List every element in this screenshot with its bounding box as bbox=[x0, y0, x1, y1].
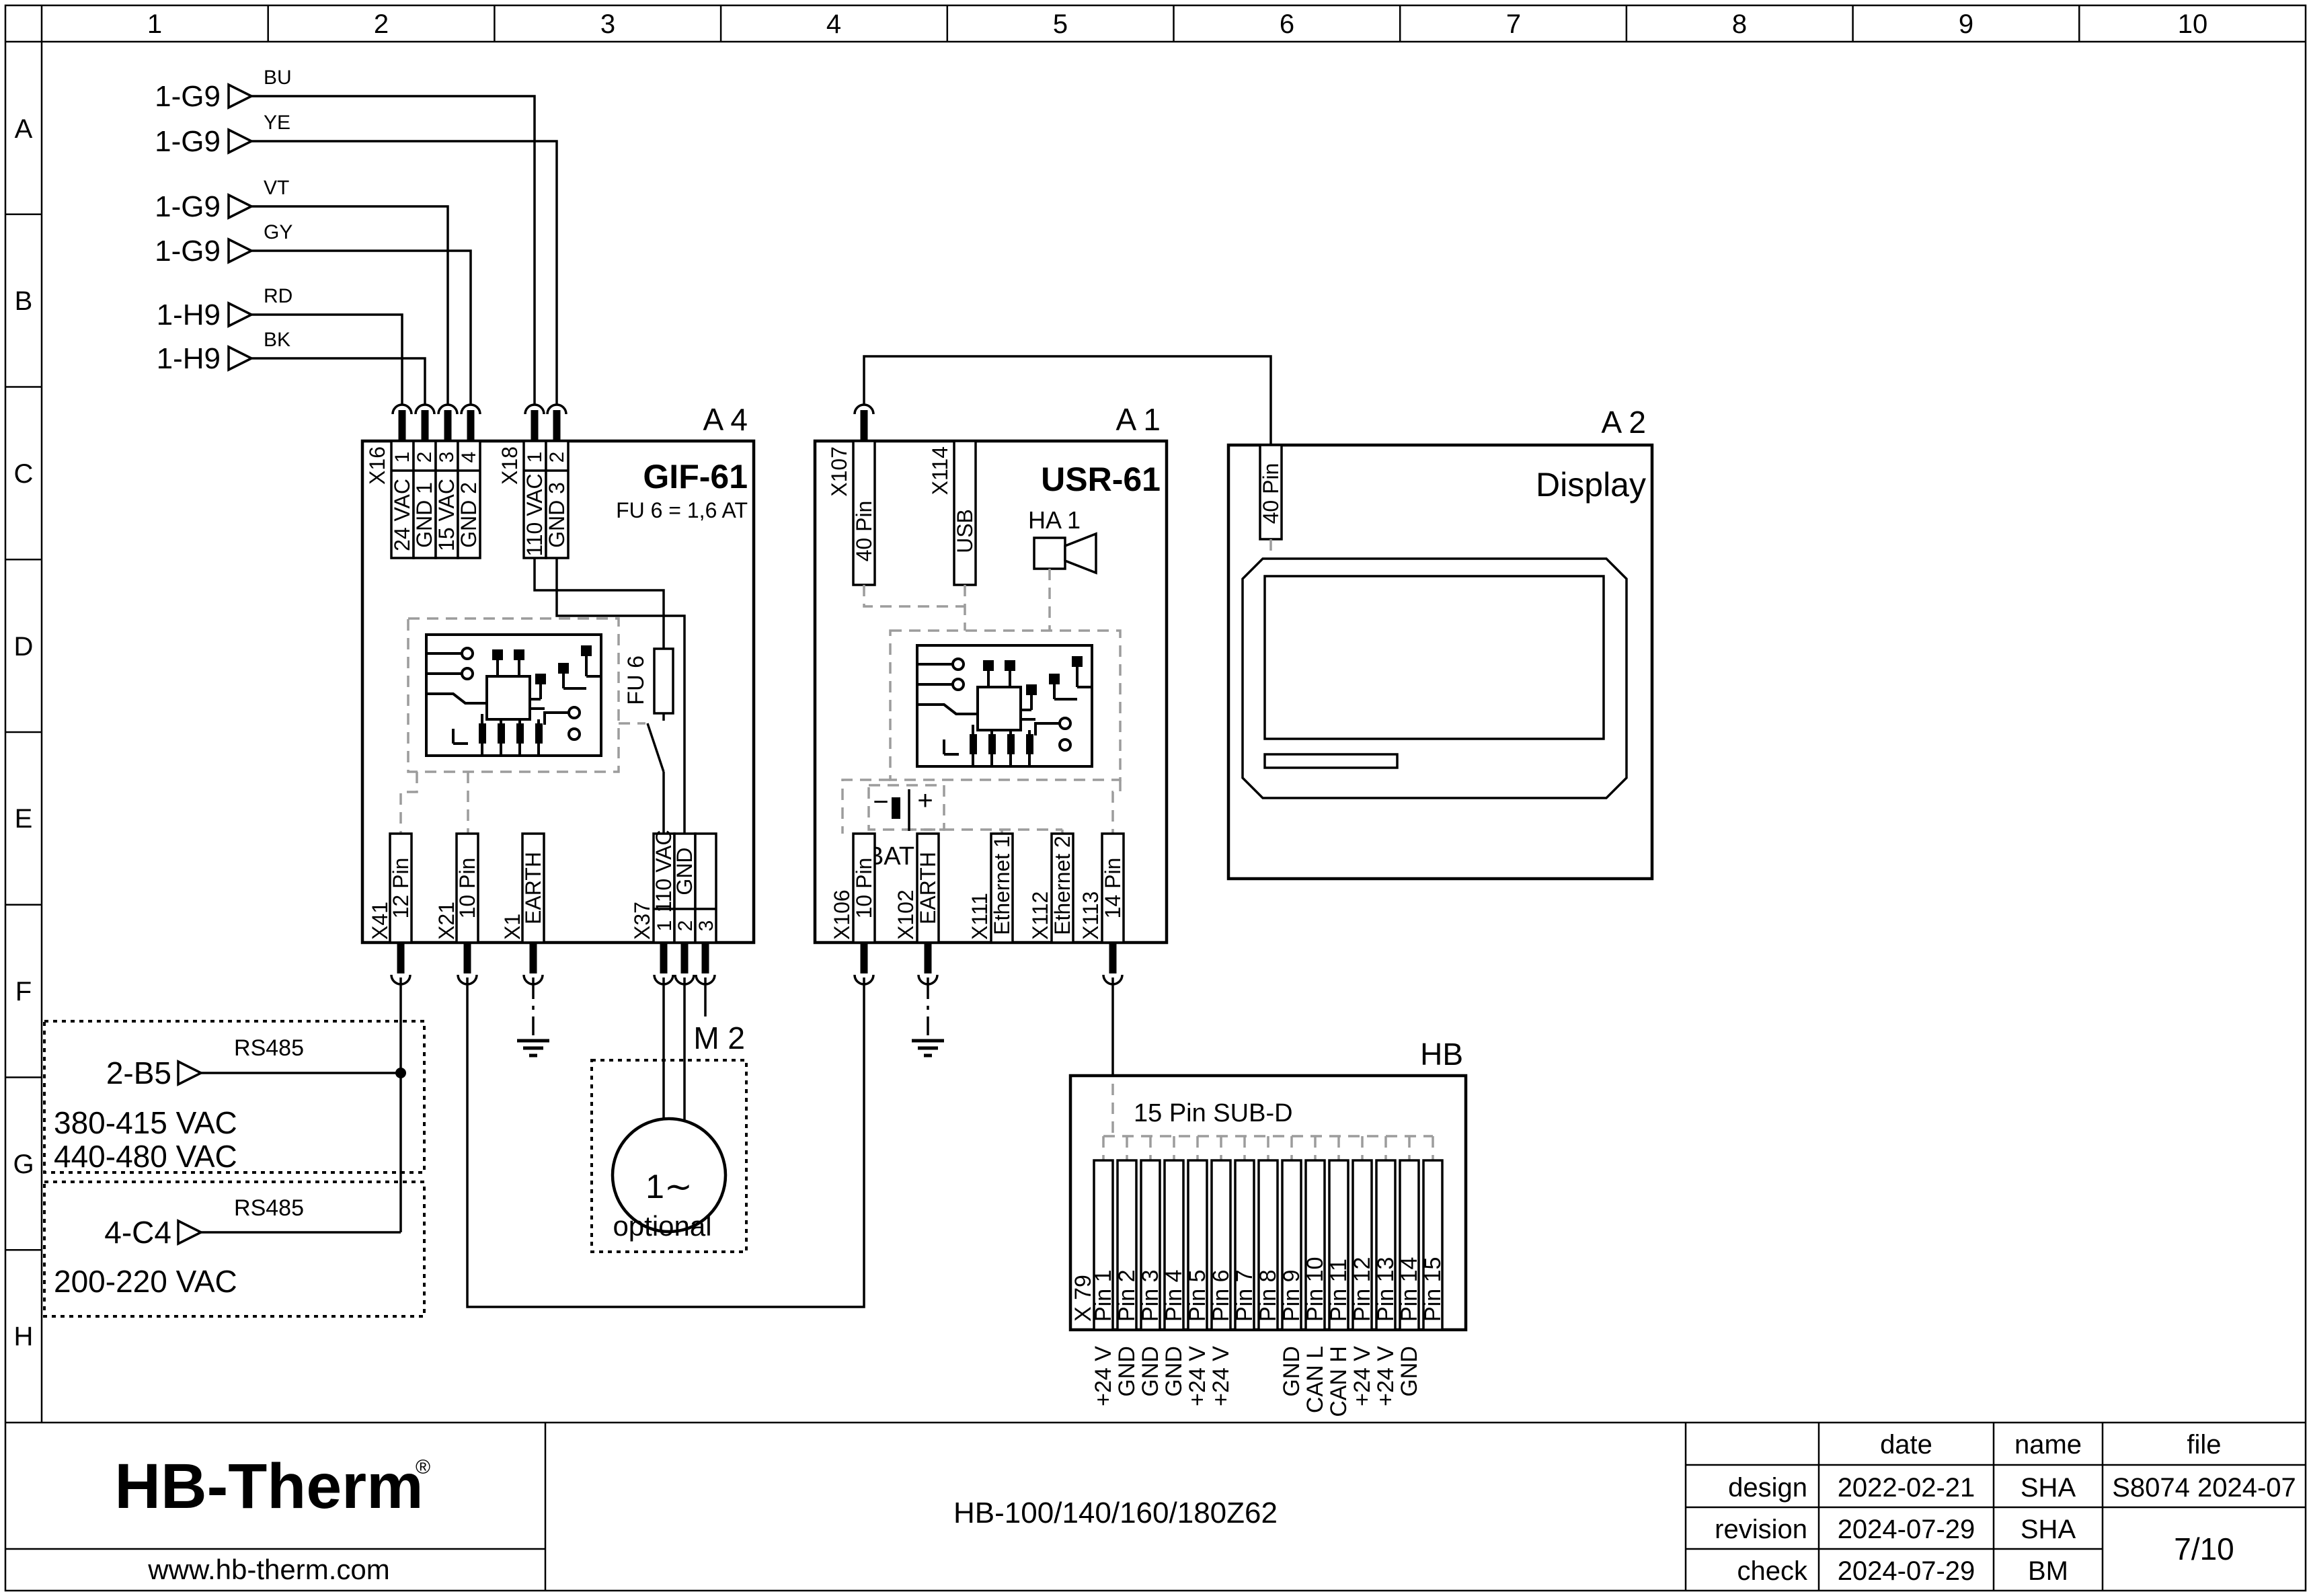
pin-signal: GND bbox=[1279, 1346, 1304, 1397]
plug-icon bbox=[416, 405, 434, 441]
col-header-file: file bbox=[2187, 1430, 2221, 1460]
title-block: HB-Therm ® www.hb-therm.com HB-100/140/1… bbox=[5, 1423, 2306, 1591]
row-name: BM bbox=[2028, 1556, 2068, 1586]
pin-signal: GND 2 bbox=[457, 482, 481, 548]
connector-label: X18 bbox=[498, 446, 522, 485]
source-ref: 4-C4 bbox=[104, 1215, 171, 1250]
wire-color-code: GY bbox=[264, 221, 292, 243]
source-ref: 2-B5 bbox=[106, 1055, 171, 1090]
block-title: USR-61 bbox=[1041, 461, 1161, 498]
schematic-sheet: 1 2 3 4 5 6 7 8 9 10 A B C D E F G H 1-G… bbox=[0, 0, 2311, 1596]
pin-signal: 24 VAC bbox=[390, 479, 414, 551]
battery-minus: − bbox=[873, 787, 888, 817]
row-check: check 2024-07-29 BM bbox=[1737, 1556, 2069, 1586]
battery-plus: + bbox=[917, 786, 933, 815]
pin-signal: GND bbox=[672, 847, 697, 895]
signal-arrow-icon bbox=[229, 303, 251, 326]
signal-arrow-icon bbox=[178, 1221, 201, 1244]
input-wires: 1-G9 BU 1-G9 YE 1-G9 VT 1-G9 GY 1-H9 RD … bbox=[155, 67, 566, 441]
page-number: 7/10 bbox=[2174, 1531, 2234, 1566]
block-title: GIF-61 bbox=[643, 458, 748, 495]
pin-number: 3 bbox=[695, 920, 717, 932]
optional-note: optional bbox=[613, 1210, 711, 1242]
pin-signal: GND bbox=[1397, 1346, 1422, 1397]
input-ref: 1-H9 bbox=[157, 342, 221, 375]
pin-signal: +24 V bbox=[1373, 1346, 1399, 1406]
ruler-col-label: 1 bbox=[147, 9, 162, 39]
row-label: revision bbox=[1715, 1515, 1807, 1544]
row-name: SHA bbox=[2021, 1473, 2076, 1503]
pin-signal: 15 VAC bbox=[434, 479, 459, 551]
website-link: www.hb-therm.com bbox=[147, 1554, 389, 1585]
input-wire-ye: 1-G9 YE bbox=[155, 112, 290, 158]
input-ref: 1-G9 bbox=[155, 190, 221, 223]
pin-number: 1 bbox=[654, 920, 676, 932]
block-ref: A 1 bbox=[1115, 402, 1161, 437]
ruler-row-label: B bbox=[15, 286, 33, 316]
connector-label: X107 bbox=[827, 446, 851, 497]
pin-number: 1 bbox=[524, 452, 546, 463]
ruler-col-label: 3 bbox=[600, 9, 615, 39]
pin-number: 3 bbox=[436, 452, 458, 463]
signal-arrow-icon bbox=[178, 1062, 201, 1084]
plug-icon bbox=[393, 405, 412, 441]
signal-arrow-icon bbox=[229, 195, 251, 218]
source-4c4: RS485 4-C4 200-220 VAC bbox=[44, 1182, 424, 1316]
block-a2: A 2 Display 40 Pin bbox=[1228, 405, 1652, 879]
wire-color-code: RD bbox=[264, 285, 292, 307]
file-value: S8074 2024-07 bbox=[2112, 1473, 2296, 1503]
pin-signal: 10 Pin bbox=[455, 858, 479, 919]
pin-signal: CAN L bbox=[1302, 1346, 1328, 1413]
input-wire-bk: 1-H9 BK bbox=[157, 329, 290, 375]
plug-icon bbox=[525, 405, 544, 441]
fuse-icon: FU 6 bbox=[623, 649, 673, 713]
pin-signal: +24 V bbox=[1349, 1346, 1375, 1406]
row-date: 2024-07-29 bbox=[1838, 1515, 1975, 1544]
plug-icon bbox=[461, 405, 480, 441]
block-ref: A 2 bbox=[1601, 405, 1646, 440]
fuse-rating: FU 6 = 1,6 AT bbox=[616, 498, 748, 522]
col-header-name: name bbox=[2014, 1430, 2082, 1460]
ruler-row-label: E bbox=[15, 804, 33, 834]
junction-dot bbox=[395, 1068, 406, 1078]
wire-color-code: YE bbox=[264, 112, 290, 134]
ruler-col-label: 7 bbox=[1506, 9, 1521, 39]
company-logo: HB-Therm ® bbox=[114, 1451, 430, 1522]
pin-label: Pin 7 bbox=[1232, 1270, 1257, 1322]
col-header-date: date bbox=[1880, 1430, 1932, 1460]
pin-signal: +24 V bbox=[1208, 1346, 1234, 1406]
input-wire-vt: 1-G9 VT bbox=[155, 177, 289, 223]
ruler-col-label: 6 bbox=[1280, 9, 1294, 39]
ruler-columns: 1 2 3 4 5 6 7 8 9 10 bbox=[147, 9, 2207, 39]
pin-signal: CAN H bbox=[1326, 1346, 1352, 1417]
wire-color-code: BK bbox=[264, 329, 290, 351]
earth-icon bbox=[912, 1041, 944, 1055]
plug-icon bbox=[547, 405, 566, 441]
pin-signal: GND bbox=[1114, 1346, 1140, 1397]
pin-signal: 10 Pin bbox=[852, 858, 876, 919]
motor-m2: M 2 1∼ optional bbox=[592, 1021, 746, 1252]
block-ref: M 2 bbox=[693, 1021, 745, 1055]
pin-number: 4 bbox=[458, 452, 480, 463]
pin-label: Pin 13 bbox=[1373, 1257, 1399, 1322]
pcb-icon bbox=[917, 645, 1092, 766]
block-a1: A 1 USR-61 X107 40 Pin X114 USB HA 1 − +… bbox=[815, 402, 1167, 943]
block-hb: HB 15 Pin SUB-D X 79 Pin 1 Pin 2 Pin 3 P… bbox=[1070, 1037, 1466, 1417]
bus-label: RS485 bbox=[234, 1195, 304, 1221]
pin-signal: Ethernet 2 bbox=[1050, 836, 1074, 935]
connector-label: X112 bbox=[1028, 891, 1052, 940]
ruler-col-label: 10 bbox=[2178, 9, 2208, 39]
subd-label: 15 Pin SUB-D bbox=[1134, 1099, 1293, 1127]
row-date: 2024-07-29 bbox=[1838, 1556, 1975, 1586]
hb-pin-signals: +24 V GND GND GND +24 V +24 V GND CAN L … bbox=[1091, 1346, 1422, 1417]
pin-signal: 40 Pin bbox=[852, 501, 876, 562]
earth-icon bbox=[517, 1041, 549, 1055]
horn-label: HA 1 bbox=[1028, 506, 1081, 534]
ruler-row-label: G bbox=[13, 1150, 34, 1179]
connector-label: X37 bbox=[630, 902, 654, 940]
input-ref: 1-H9 bbox=[157, 298, 221, 331]
block-ref: A 4 bbox=[703, 402, 748, 437]
pin-label: Pin 3 bbox=[1138, 1270, 1163, 1322]
pin-signal: GND bbox=[1138, 1346, 1163, 1397]
ruler-col-label: 8 bbox=[1732, 9, 1747, 39]
schematic-drawing: 1 2 3 4 5 6 7 8 9 10 A B C D E F G H 1-G… bbox=[0, 0, 2311, 1596]
logo-text: HB-Therm bbox=[114, 1451, 423, 1522]
plug-icon bbox=[855, 405, 873, 441]
input-ref: 1-G9 bbox=[155, 80, 221, 113]
connector-40pin: 40 Pin bbox=[1259, 445, 1283, 539]
pin-label: Pin 4 bbox=[1161, 1270, 1187, 1322]
input-wire-rd: 1-H9 RD bbox=[157, 285, 293, 331]
row-design: design 2022-02-21 SHA S8074 2024-07 bbox=[1728, 1473, 2296, 1503]
row-name: SHA bbox=[2021, 1515, 2076, 1544]
ruler-row-label: C bbox=[14, 459, 34, 489]
wire-color-code: VT bbox=[264, 177, 289, 199]
horn-icon bbox=[1034, 538, 1065, 569]
ruler-row-label: A bbox=[15, 114, 33, 144]
registered-mark: ® bbox=[416, 1456, 430, 1478]
pin-signal: +24 V bbox=[1091, 1346, 1116, 1406]
plug-icon bbox=[438, 405, 457, 441]
pin-label: Pin 9 bbox=[1279, 1270, 1304, 1322]
voltage-range: 200-220 VAC bbox=[54, 1264, 237, 1299]
pin-signal: USB bbox=[953, 509, 977, 553]
source-2b5: RS485 2-B5 380-415 VAC 440-480 VAC bbox=[44, 1021, 424, 1174]
pin-signal: Ethernet 1 bbox=[990, 836, 1014, 935]
connector-label: X106 bbox=[830, 889, 854, 940]
connector-label: X114 bbox=[928, 446, 952, 495]
signal-arrow-icon bbox=[229, 239, 251, 262]
drawing-title: HB-100/140/160/180Z62 bbox=[953, 1497, 1278, 1529]
pin-label: Pin 12 bbox=[1349, 1257, 1375, 1322]
block-ref: HB bbox=[1420, 1037, 1463, 1072]
pin-signal: EARTH bbox=[521, 852, 545, 924]
battery-icon bbox=[892, 797, 900, 819]
pin-signal: 14 Pin bbox=[1101, 858, 1125, 919]
pin-label: Pin 6 bbox=[1208, 1270, 1234, 1322]
signal-arrow-icon bbox=[229, 85, 251, 108]
voltage-range: 380-415 VAC bbox=[54, 1105, 237, 1140]
wire-color-code: BU bbox=[264, 67, 292, 89]
ruler-row-label: D bbox=[14, 632, 34, 662]
pin-number: 2 bbox=[546, 452, 568, 463]
row-date: 2022-02-21 bbox=[1838, 1473, 1975, 1503]
pin-signal: 40 Pin bbox=[1259, 463, 1283, 524]
pin-number: 1 bbox=[391, 452, 414, 463]
ruler-col-label: 5 bbox=[1053, 9, 1068, 39]
connector-label: X113 bbox=[1079, 891, 1103, 940]
pin-signal: 12 Pin bbox=[389, 858, 413, 919]
ruler-col-label: 2 bbox=[374, 9, 389, 39]
row-label: check bbox=[1737, 1556, 1808, 1586]
pin-number: 2 bbox=[674, 920, 697, 932]
hb-pins: Pin 1 Pin 2 Pin 3 Pin 4 Pin 5 Pin 6 Pin … bbox=[1091, 1160, 1446, 1330]
ruler-col-label: 4 bbox=[826, 9, 841, 39]
block-title: Display bbox=[1536, 466, 1646, 504]
voltage-range: 440-480 VAC bbox=[54, 1139, 237, 1174]
wire-display-40pin bbox=[864, 356, 1271, 445]
pin-label: Pin 2 bbox=[1114, 1270, 1140, 1322]
connector-label: X111 bbox=[968, 893, 992, 940]
signal-arrow-icon bbox=[229, 347, 251, 370]
pin-label: Pin 14 bbox=[1397, 1257, 1422, 1322]
pin-signal: EARTH bbox=[916, 852, 940, 924]
ruler-row-label: H bbox=[14, 1322, 34, 1351]
input-wire-bu: 1-G9 BU bbox=[155, 67, 292, 113]
ruler-row-label: F bbox=[15, 977, 32, 1006]
pin-label: Pin 11 bbox=[1326, 1259, 1352, 1322]
pin-signal: GND bbox=[1161, 1346, 1187, 1397]
input-wire-gy: 1-G9 GY bbox=[155, 221, 292, 268]
pin-label: Pin 15 bbox=[1420, 1257, 1446, 1322]
input-ref: 1-G9 bbox=[155, 125, 221, 158]
pin-label: Pin 8 bbox=[1255, 1270, 1281, 1322]
pcb-icon bbox=[426, 635, 601, 756]
pin-label: Pin 5 bbox=[1185, 1270, 1210, 1322]
pin-signal: +24 V bbox=[1185, 1346, 1210, 1406]
pin-number: 2 bbox=[414, 452, 436, 463]
signal-arrow-icon bbox=[229, 130, 251, 153]
row-label: design bbox=[1728, 1473, 1807, 1503]
ruler-col-label: 9 bbox=[1959, 9, 1973, 39]
motor-symbol: 1∼ bbox=[645, 1168, 693, 1205]
block-a4: A 4 GIF-61 FU 6 = 1,6 AT X16 1 2 3 4 24 … bbox=[362, 402, 754, 943]
pin-label: Pin 10 bbox=[1302, 1257, 1328, 1322]
pin-signal: GND 3 bbox=[545, 482, 569, 548]
row-revision: revision 2024-07-29 SHA bbox=[1715, 1515, 2076, 1544]
pin-label: Pin 1 bbox=[1091, 1270, 1116, 1322]
connector-label: X16 bbox=[365, 446, 389, 485]
display-bezel bbox=[1243, 559, 1627, 798]
display-button-bar bbox=[1265, 754, 1397, 768]
input-ref: 1-G9 bbox=[155, 235, 221, 268]
pin-signal: GND 1 bbox=[412, 482, 436, 548]
bus-label: RS485 bbox=[234, 1035, 304, 1061]
display-screen bbox=[1265, 576, 1604, 739]
fuse-label: FU 6 bbox=[623, 655, 649, 705]
pin-signal: 110 VAC bbox=[522, 473, 547, 556]
connector-label: X102 bbox=[894, 889, 918, 940]
